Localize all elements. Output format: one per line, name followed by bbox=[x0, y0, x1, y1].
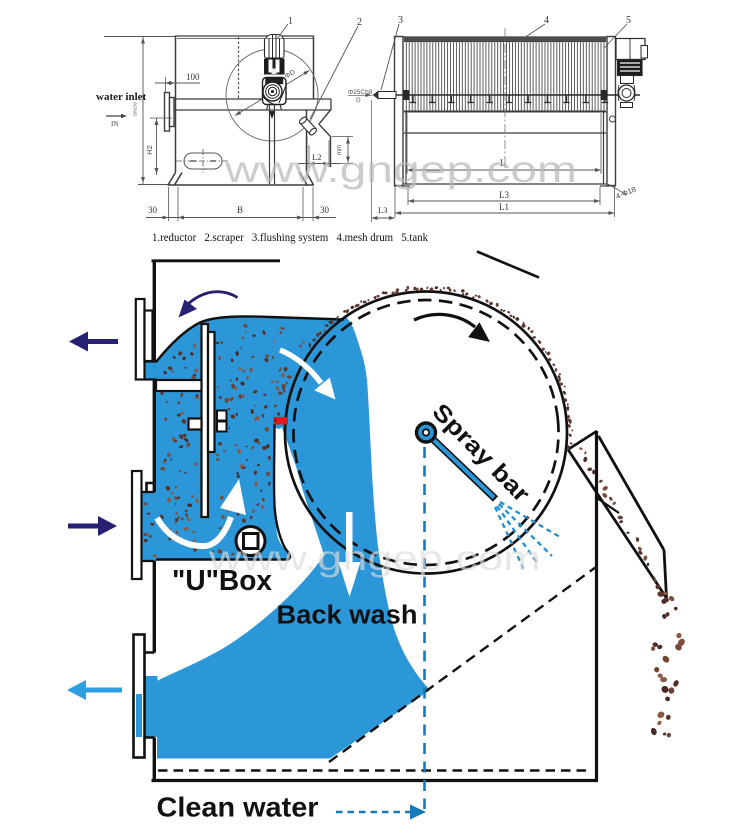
svg-text:30: 30 bbox=[320, 205, 330, 215]
svg-text:www.gngep.com: www.gngep.com bbox=[224, 149, 577, 190]
svg-text:G: G bbox=[356, 98, 361, 104]
svg-text:IN: IN bbox=[111, 120, 118, 128]
svg-text:DN150: DN150 bbox=[133, 102, 138, 117]
svg-text:L3: L3 bbox=[499, 190, 509, 200]
svg-text:L3: L3 bbox=[378, 205, 387, 215]
svg-text:1.reductor 2.scraper 3.flu: 1.reductor 2.scraper 3.flushing system 4… bbox=[152, 232, 428, 244]
svg-text:100: 100 bbox=[186, 72, 200, 82]
svg-text:B: B bbox=[237, 205, 243, 215]
svg-text:water inlet: water inlet bbox=[96, 91, 147, 103]
svg-text:H2: H2 bbox=[145, 145, 154, 155]
svg-text:www.gngep.com: www.gngep.com bbox=[208, 538, 541, 578]
svg-text:L1: L1 bbox=[499, 202, 509, 212]
svg-text:Clean water: Clean water bbox=[157, 792, 319, 823]
svg-text:30: 30 bbox=[148, 205, 158, 215]
svg-text:Back wash: Back wash bbox=[277, 602, 418, 630]
svg-text:1: 1 bbox=[288, 16, 293, 27]
svg-text:4-Φ18: 4-Φ18 bbox=[614, 185, 637, 201]
